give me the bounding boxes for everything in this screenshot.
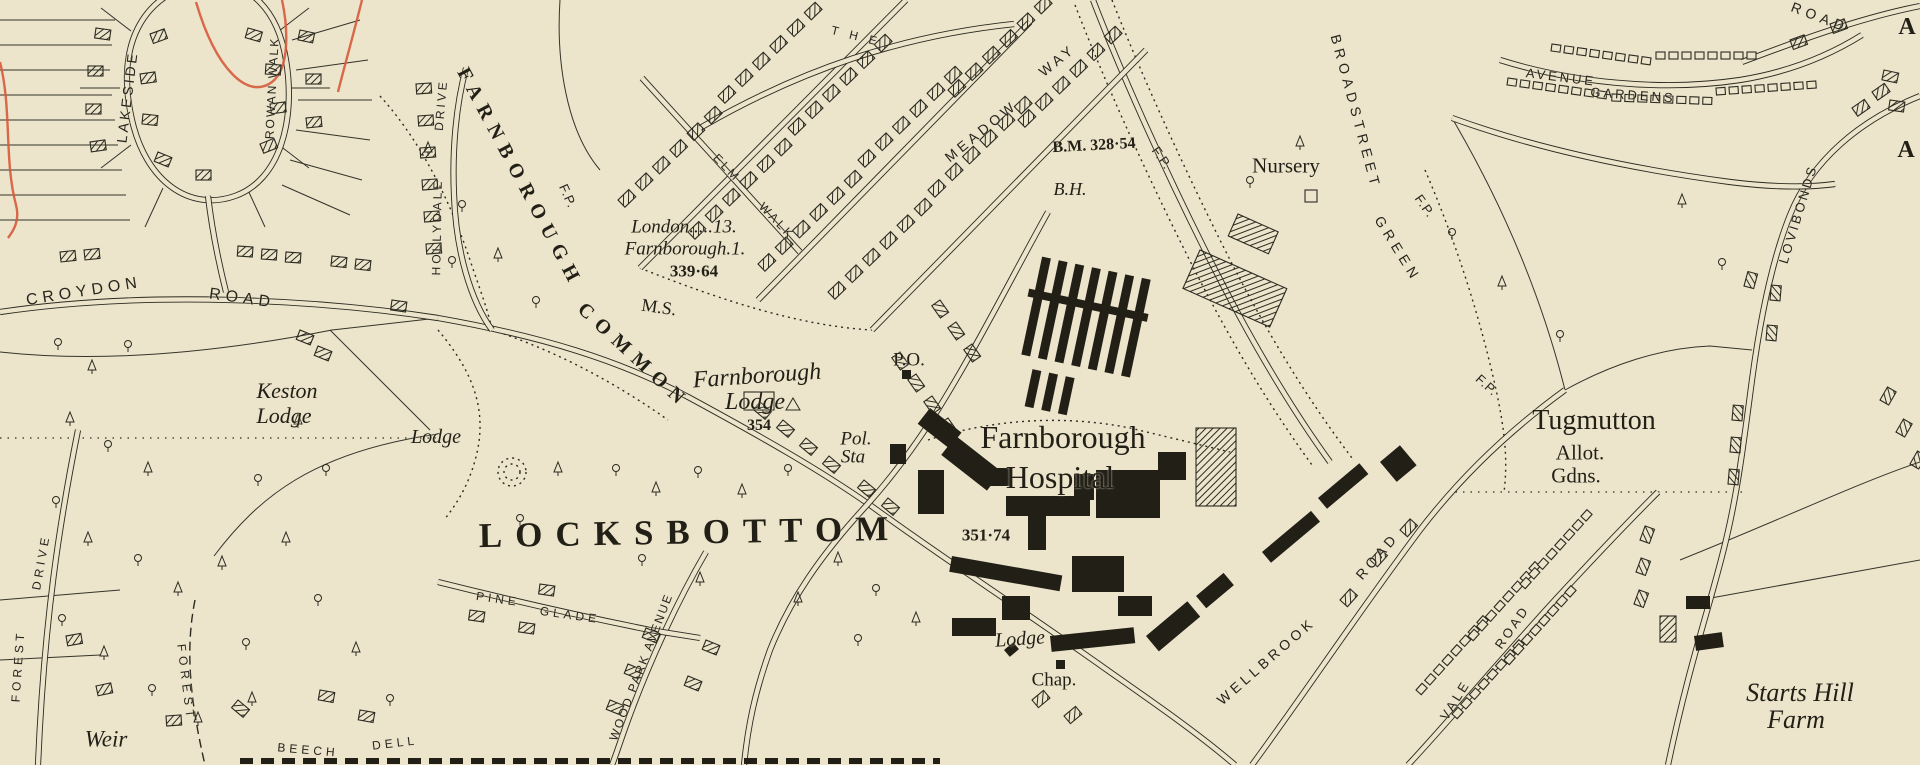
map-viewport[interactable]: LAKESIDEROWAN WALKCROYDONROADKestonLodge…	[0, 0, 1920, 765]
map-base	[0, 0, 1920, 765]
